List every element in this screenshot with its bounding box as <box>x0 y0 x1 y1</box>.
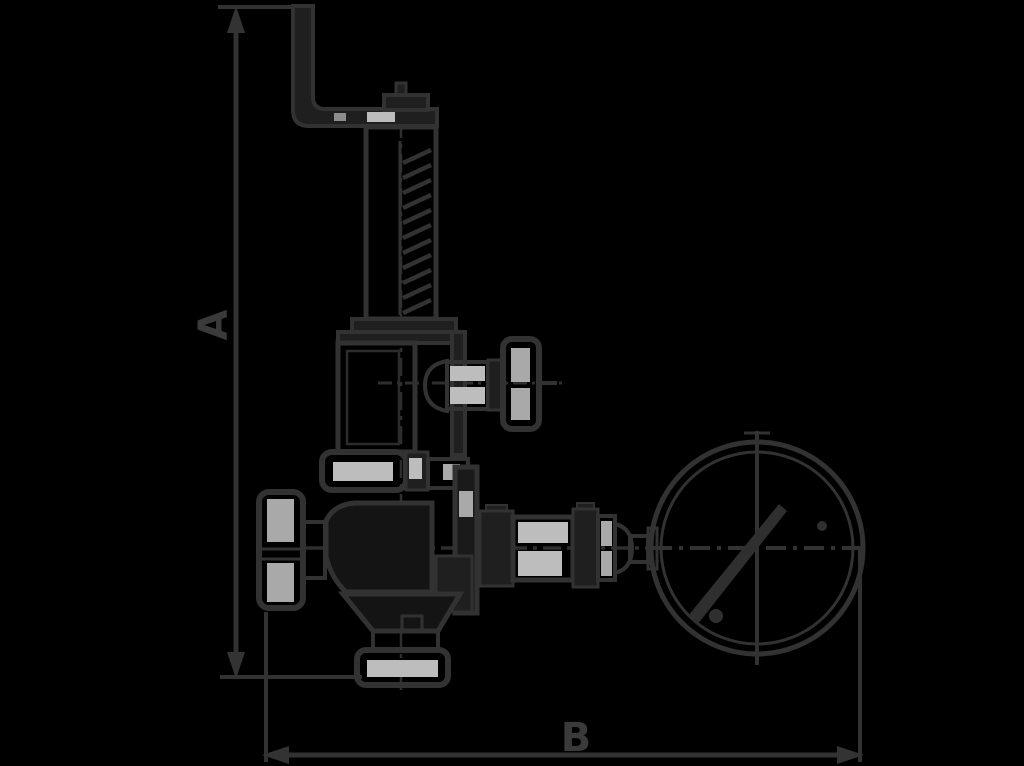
valve-technical-drawing: A B <box>0 0 1024 766</box>
pressure-gauge <box>651 431 863 665</box>
spring-housing <box>338 127 465 343</box>
coupling-slot-bottom <box>601 551 612 576</box>
bonnet-chamber-inner <box>347 351 399 444</box>
flange-highlight <box>333 462 393 481</box>
outlet-highlight-bottom <box>450 387 485 404</box>
handwheel-hub-lines <box>259 549 303 559</box>
inlet-stem <box>303 522 325 578</box>
inlet-handwheel-slot-bottom <box>267 563 294 602</box>
flange-right-slot <box>409 458 422 479</box>
dimension-b-label: B <box>561 715 592 761</box>
side-handwheel-slot-bottom <box>511 388 530 420</box>
spindle-cap <box>384 83 428 110</box>
diagram-canvas: A B <box>0 0 1024 766</box>
union-nut-1 <box>480 511 513 586</box>
dim-a-arrow-down-icon <box>227 652 245 679</box>
outlet-nose <box>425 361 447 411</box>
cap-block <box>384 95 428 110</box>
pipe-highlight-top <box>518 522 568 543</box>
spring-coils <box>403 150 431 313</box>
bonnet-chamber <box>338 343 415 452</box>
valve-body <box>326 503 432 592</box>
side-handwheel-slot-top <box>511 348 530 382</box>
outlet-highlight-top <box>450 366 485 381</box>
inlet-handwheel-slot-top <box>267 499 294 542</box>
upper-flange <box>322 452 468 490</box>
dimension-a-label: A <box>191 309 237 340</box>
gauge-needle <box>688 504 787 625</box>
coupling-slot-top <box>601 521 612 546</box>
lever-highlight-small <box>334 113 346 121</box>
lever-highlight <box>367 112 395 122</box>
bottom-flange-highlight <box>367 660 438 677</box>
right-plate-slot <box>459 491 473 517</box>
pipe-highlight-bottom <box>518 551 562 576</box>
gauge-dot-right <box>817 521 827 531</box>
union-nut-2 <box>573 509 598 587</box>
dim-a-arrow-up-icon <box>227 6 245 33</box>
pipe-couplings <box>480 503 657 587</box>
gauge-dot-left <box>709 609 723 623</box>
